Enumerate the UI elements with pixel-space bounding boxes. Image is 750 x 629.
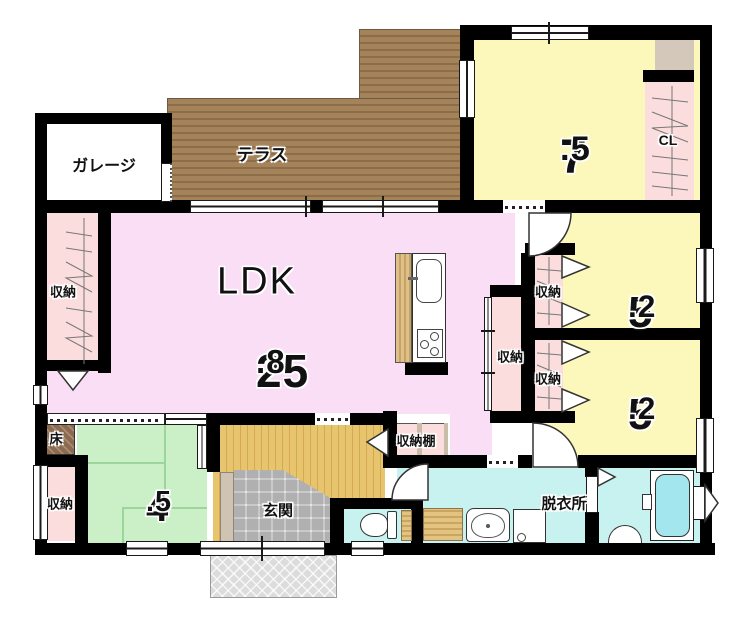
closet-mid-label: 収納 xyxy=(497,347,523,366)
wall-hall-center xyxy=(521,253,535,423)
door-arc-5-2a[interactable] xyxy=(529,212,571,256)
window-tick xyxy=(305,196,307,217)
terrace-floor-upper xyxy=(360,30,467,100)
slider-tick xyxy=(481,330,495,332)
closet-a-fold-icon xyxy=(562,256,589,278)
storage-shelf-post xyxy=(444,423,448,456)
bathroom-vent-icon xyxy=(705,485,719,521)
closet-b-label: 収納 xyxy=(535,369,561,388)
wall-genkan-left xyxy=(207,423,220,472)
garage-door[interactable] xyxy=(161,163,172,202)
cl-corner-beige xyxy=(655,40,694,73)
tatami-line xyxy=(122,507,124,543)
wall-garage-right xyxy=(161,113,172,166)
wall-toilet-left xyxy=(330,498,344,544)
wall-7-5-bottom xyxy=(460,200,700,213)
floorplan: ガレージ テラス LDK 25.8 7.5 CL 5.2 5.2 4.5 収納 … xyxy=(0,0,750,629)
shoji-ldk-tatami[interactable] xyxy=(47,413,165,425)
washbasin-drain-icon xyxy=(486,524,490,528)
closet-a-label: 収納 xyxy=(535,282,561,301)
stove-burner-icon xyxy=(420,340,429,349)
shelf-label: 収納棚 xyxy=(396,431,435,450)
wall-closet-mid-top xyxy=(490,285,523,297)
window-tick xyxy=(382,196,384,217)
door-arc-5-2b[interactable] xyxy=(533,423,578,467)
dressing-label: 脱衣所 xyxy=(541,493,586,514)
wall-cl-stub xyxy=(643,70,694,82)
closet-bottom-label: 収納 xyxy=(47,494,73,513)
stove-burner-icon xyxy=(430,347,439,356)
window-tick xyxy=(548,22,550,44)
room52b-window[interactable] xyxy=(696,418,714,473)
left-wall-window[interactable] xyxy=(33,385,48,405)
closet-left-label: 収納 xyxy=(50,282,76,301)
closet-b-fold-icon xyxy=(562,389,589,412)
slider-tick xyxy=(481,372,495,374)
slider-tatami-genkan[interactable] xyxy=(197,425,207,469)
slider-closet-mid[interactable] xyxy=(484,297,492,411)
bathroom-door[interactable] xyxy=(586,476,598,513)
wall-closet-left-right xyxy=(98,200,111,373)
opening-ldk-hall[interactable] xyxy=(315,413,350,425)
shoe-cabinet xyxy=(220,472,234,543)
kitchen-counter-wood xyxy=(395,253,412,363)
toilet-tank xyxy=(387,511,397,539)
wall-closets-bottom xyxy=(490,411,575,423)
kitchen-sink xyxy=(416,259,442,303)
wall-between-5-2 xyxy=(535,328,712,340)
wall-tatami-right xyxy=(75,455,88,543)
closet-a-fold-icon xyxy=(562,303,589,327)
wall-bath-divider-bottom xyxy=(585,512,599,544)
opening-washroom[interactable] xyxy=(487,455,518,468)
toilet-window[interactable] xyxy=(351,541,384,556)
tatami-window[interactable] xyxy=(126,541,168,556)
closet-b-fold-icon xyxy=(562,341,589,364)
ldk-window-2[interactable] xyxy=(322,200,439,213)
room52a-window[interactable] xyxy=(696,248,714,303)
toilet-bowl xyxy=(360,513,388,537)
bath-mat-slats xyxy=(423,508,463,541)
washing-machine-drain-icon xyxy=(517,533,526,542)
terrace-floor xyxy=(168,99,467,201)
toilet-side-slats xyxy=(401,510,412,541)
tatami-line xyxy=(77,462,165,464)
closet-left-fold-icon xyxy=(58,371,88,390)
bathtub xyxy=(655,474,690,537)
room75-top-window[interactable] xyxy=(511,26,589,40)
entrance-door-tick xyxy=(261,536,263,561)
wall-kitchen-stub xyxy=(405,362,448,375)
shelf-fold-icon xyxy=(367,429,388,456)
wall-7-5-left xyxy=(460,25,474,213)
terrace-label: テラス xyxy=(237,141,288,166)
garage-label: ガレージ xyxy=(72,152,136,176)
cl-label: CL xyxy=(659,132,678,148)
genkan-label: 玄関 xyxy=(263,500,293,521)
bathtub-faucet-icon xyxy=(642,494,652,510)
ldk-label: LDK xyxy=(217,261,297,304)
door-arc-washroom[interactable] xyxy=(392,464,428,500)
wall-above-genkan xyxy=(205,413,315,425)
tokonoma-label: 床 xyxy=(49,429,62,448)
tatami-room-floor xyxy=(77,423,207,543)
bathroom-fold-icon xyxy=(598,467,615,487)
wall-garage-top xyxy=(35,113,172,124)
porch xyxy=(210,555,337,598)
wall-toilet-right xyxy=(411,498,423,544)
ldk-corridor-floor xyxy=(450,413,492,458)
stove-burner-icon xyxy=(430,332,439,341)
ldk-window-1[interactable] xyxy=(190,200,311,213)
kitchen-faucet-icon xyxy=(408,277,418,280)
closet-bottom-slider[interactable] xyxy=(33,465,48,540)
slider-ldk-tatami[interactable] xyxy=(165,413,207,425)
room75-terrace-window[interactable] xyxy=(459,60,475,118)
